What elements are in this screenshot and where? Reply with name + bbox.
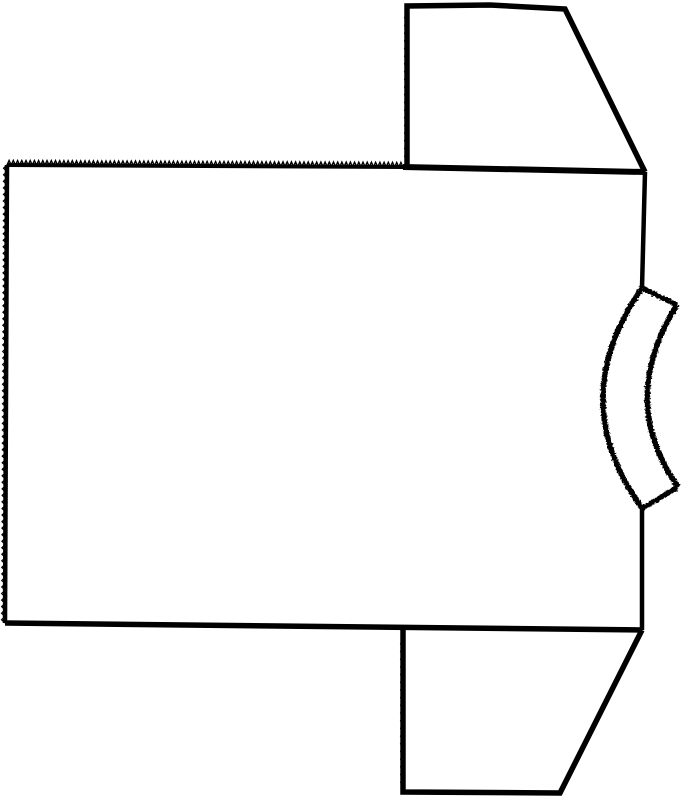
body-shoulder-line bbox=[403, 167, 645, 172]
body-right-edge-upper bbox=[642, 172, 645, 288]
collar-top-cap bbox=[642, 288, 677, 305]
tshirt-outline-drawing bbox=[0, 0, 687, 800]
bottom-sleeve-outline bbox=[403, 629, 642, 793]
main-outline-group bbox=[2, 5, 645, 793]
collar-inner-arc bbox=[603, 288, 642, 508]
collar-bottom-cap bbox=[643, 487, 678, 508]
collar-band-group bbox=[603, 288, 678, 508]
top-sleeve-outline bbox=[407, 5, 645, 172]
body-bottom-edge bbox=[5, 623, 642, 630]
collar-outer-arc bbox=[647, 305, 678, 487]
body-top-edge-serrated-teeth bbox=[7, 160, 403, 167]
tshirt-pattern-page bbox=[0, 0, 687, 800]
